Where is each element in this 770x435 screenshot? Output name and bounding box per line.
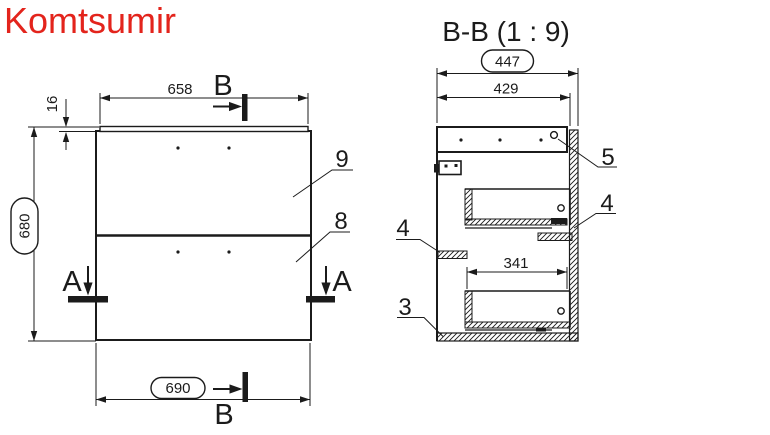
front-view: 658 B 16 680 <box>11 70 353 431</box>
bottom-panel-section <box>437 333 578 341</box>
upper-drawer-section <box>465 189 570 228</box>
arrowhead <box>437 70 447 76</box>
dim-690-text: 690 <box>165 380 190 397</box>
section-marker-b-top: B <box>213 70 248 121</box>
section-view: B-B (1 : 9) 447 429 <box>396 16 617 341</box>
part-label-9: 9 <box>335 146 348 173</box>
drawer-bottom-tick <box>536 329 546 332</box>
drawer-back-wall <box>465 189 472 220</box>
arrowhead <box>298 95 308 101</box>
dim-658-text: 658 <box>167 81 192 98</box>
arrowhead <box>557 269 567 275</box>
slide-rail-left <box>438 251 467 259</box>
arrowhead <box>568 70 578 76</box>
section-marker-a-right: A <box>306 266 352 303</box>
dim-447-text: 447 <box>495 54 520 71</box>
arrowhead <box>31 331 37 341</box>
drawer-back-wall <box>465 291 472 322</box>
section-b-letter-bottom: B <box>214 399 233 431</box>
part-label-5: 5 <box>601 144 614 171</box>
arrowhead <box>300 396 310 402</box>
dim-16: 16 <box>44 96 98 150</box>
top-panel-edge <box>100 127 308 132</box>
dim-341: 341 <box>467 255 567 289</box>
arrowhead <box>467 269 477 275</box>
fixing-bracket <box>434 161 461 175</box>
dim-658: 658 <box>100 81 308 124</box>
screw-hole-circle <box>551 132 558 139</box>
arrowhead <box>96 396 106 402</box>
slide-rail-right <box>538 233 572 241</box>
part-label-4-right: 4 <box>600 190 613 217</box>
drawer-front-section <box>551 218 567 224</box>
section-a-letter-left: A <box>62 266 82 298</box>
drawing-title: Komtsumir <box>4 0 176 41</box>
dim-429-text: 429 <box>493 81 518 98</box>
arrowhead <box>560 94 570 100</box>
section-arrow <box>83 283 92 296</box>
part-label-3: 3 <box>398 294 411 321</box>
section-b-letter-top: B <box>213 70 232 102</box>
screw-hole-circle <box>558 308 564 314</box>
screw-hole-circle <box>558 205 564 211</box>
dim-680: 680 <box>11 127 99 341</box>
arrowhead <box>63 132 69 142</box>
section-arrow <box>229 102 242 111</box>
drawing-sheet: Komtsumir 658 B <box>0 0 770 435</box>
arrowhead <box>437 94 447 100</box>
bracket-tab <box>434 164 439 173</box>
section-arrow <box>321 283 330 296</box>
part-label-8: 8 <box>334 208 347 235</box>
drawer-bottom <box>465 322 570 328</box>
dim-341-text: 341 <box>503 255 528 272</box>
part-label-4-left: 4 <box>396 215 409 242</box>
leader-part-4-right: 4 <box>574 190 616 228</box>
section-marker-b-bottom: B <box>213 372 248 431</box>
lower-drawer-section <box>465 291 570 332</box>
leader-part-4-left: 4 <box>396 215 440 253</box>
dim-429: 429 <box>437 81 570 127</box>
arrowhead <box>100 95 110 101</box>
cad-drawing: Komtsumir 658 B <box>0 0 770 435</box>
section-arrow <box>230 384 243 393</box>
section-a-letter-right: A <box>332 266 352 298</box>
arrowhead <box>63 117 69 127</box>
section-view-title: B-B (1 : 9) <box>442 16 570 47</box>
dim-16-text: 16 <box>44 96 61 113</box>
dim-680-text: 680 <box>17 213 34 238</box>
dim-690: 690 <box>96 343 310 406</box>
arrowhead <box>31 127 37 137</box>
top-panel-section <box>437 127 567 152</box>
